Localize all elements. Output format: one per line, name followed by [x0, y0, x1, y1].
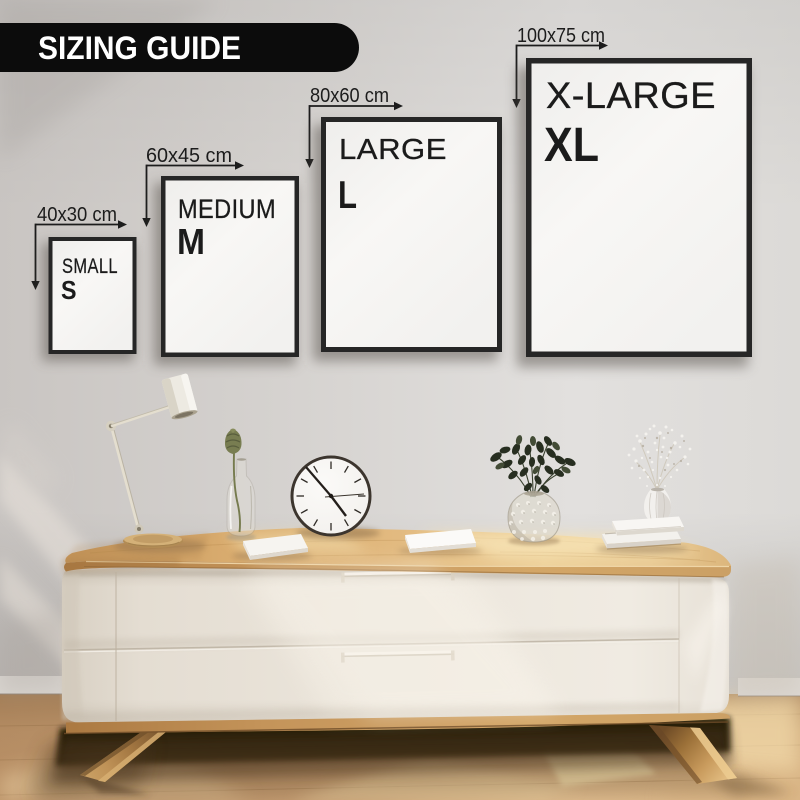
svg-text:SIZING GUIDE: SIZING GUIDE [38, 30, 241, 66]
svg-text:100x75 cm: 100x75 cm [517, 25, 605, 47]
svg-text:LARGE: LARGE [339, 134, 447, 166]
svg-text:S: S [61, 275, 77, 305]
svg-text:80x60 cm: 80x60 cm [310, 85, 389, 107]
svg-text:M: M [177, 221, 205, 262]
svg-text:L: L [338, 174, 357, 217]
svg-text:60x45 cm: 60x45 cm [146, 145, 232, 167]
svg-text:XL: XL [544, 119, 599, 172]
svg-text:MEDIUM: MEDIUM [178, 194, 276, 224]
svg-text:X-LARGE: X-LARGE [546, 75, 716, 116]
svg-text:40x30 cm: 40x30 cm [37, 204, 117, 226]
